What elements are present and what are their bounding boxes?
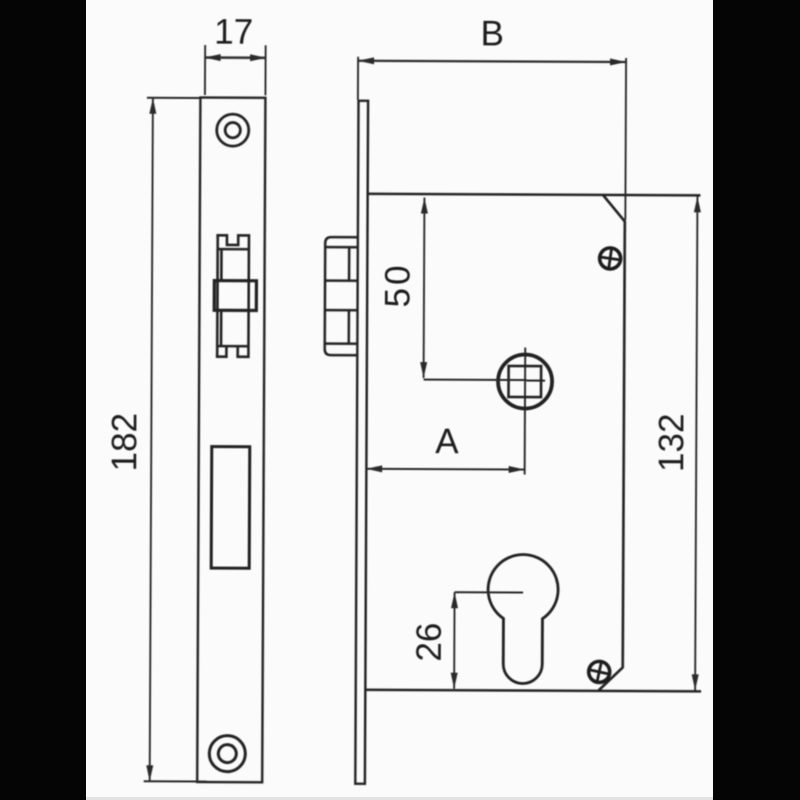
svg-text:26: 26 [410,623,449,662]
svg-text:182: 182 [105,413,144,472]
svg-text:50: 50 [378,262,417,307]
svg-text:B: B [480,14,504,53]
svg-text:A: A [435,422,459,461]
svg-text:132: 132 [652,413,691,472]
svg-text:17: 17 [214,13,253,52]
